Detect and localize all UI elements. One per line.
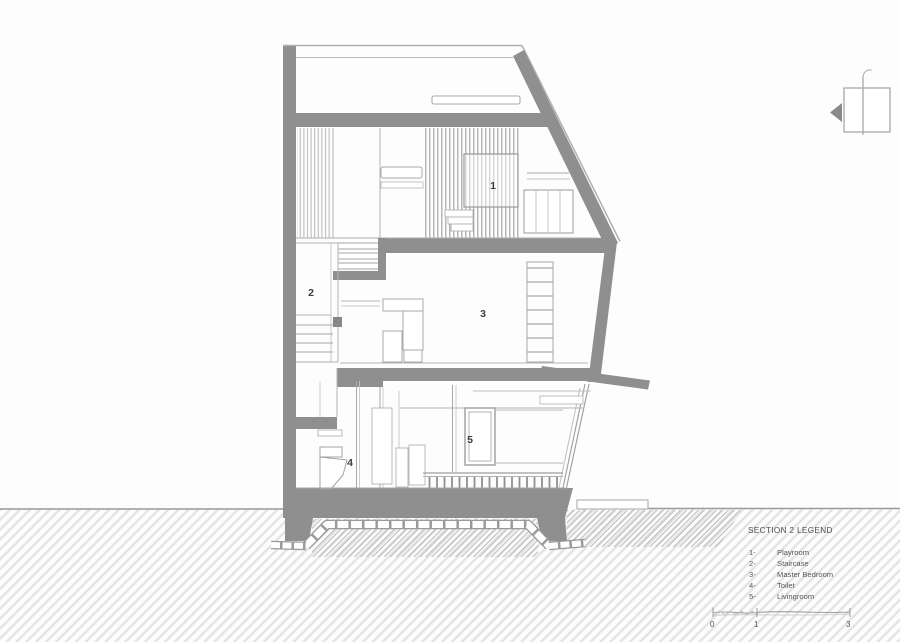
slab-level2 bbox=[380, 238, 610, 253]
bedroom-furniture bbox=[383, 299, 423, 311]
stair-landing-slab bbox=[291, 417, 337, 429]
room-label-staircase: 2 bbox=[308, 287, 314, 299]
floor-ground bbox=[296, 381, 591, 489]
section-drawing-canvas: 1 2 3 4 5 SECTION 2 LEGEND 1- Playroom 2… bbox=[0, 0, 900, 642]
bedroom-furniture bbox=[383, 331, 402, 362]
wardrobe bbox=[524, 190, 573, 233]
stair-tread bbox=[338, 263, 380, 269]
stair-tread bbox=[338, 253, 380, 259]
svg-text:5-: 5- bbox=[749, 592, 756, 601]
shelving-unit bbox=[527, 262, 553, 362]
door-leaf bbox=[372, 408, 392, 484]
slat-screen-left bbox=[297, 128, 330, 238]
section-marker-icon bbox=[830, 70, 890, 135]
svg-text:Toilet: Toilet bbox=[777, 581, 796, 590]
svg-text:4-: 4- bbox=[749, 581, 756, 590]
shelf-unit bbox=[381, 167, 422, 178]
room-label-livingroom: 5 bbox=[467, 434, 473, 446]
floor-playroom bbox=[296, 128, 598, 238]
bedroom-furniture bbox=[404, 350, 422, 362]
room-label-toilet: 4 bbox=[347, 457, 353, 469]
ledge bbox=[540, 396, 583, 404]
room-label-master-bedroom: 3 bbox=[480, 308, 486, 320]
skylight bbox=[432, 96, 520, 104]
svg-text:3-: 3- bbox=[749, 570, 756, 579]
cabinet bbox=[396, 448, 408, 487]
building-section: 1 2 3 4 5 bbox=[271, 46, 650, 547]
scale-tick-3: 3 bbox=[846, 620, 851, 629]
terrace-step bbox=[577, 500, 648, 509]
stair-newel bbox=[333, 317, 342, 327]
right-wall-upper bbox=[588, 242, 617, 382]
dense-hatch-right bbox=[567, 510, 742, 547]
section-arrow-icon bbox=[830, 103, 842, 122]
svg-text:Master Bedroom: Master Bedroom bbox=[777, 570, 833, 579]
stair-tread bbox=[338, 243, 380, 249]
railing bbox=[423, 473, 563, 488]
svg-text:Staircase: Staircase bbox=[777, 559, 809, 568]
svg-text:Livingroom: Livingroom bbox=[777, 592, 814, 601]
svg-text:Playroom: Playroom bbox=[777, 548, 809, 557]
cabinet bbox=[409, 445, 425, 485]
svg-text:1-: 1- bbox=[749, 548, 756, 557]
svg-text:2-: 2- bbox=[749, 559, 756, 568]
stair-landing-edge bbox=[333, 271, 381, 280]
staircase bbox=[296, 238, 386, 417]
bedroom-furniture bbox=[403, 311, 423, 350]
scale-tick-1: 1 bbox=[754, 620, 759, 629]
stair-flight-lower bbox=[296, 318, 333, 358]
toilet-fixture bbox=[320, 447, 347, 489]
room-label-playroom: 1 bbox=[490, 180, 496, 192]
legend-title: SECTION 2 LEGEND bbox=[748, 526, 833, 535]
ceiling-slab bbox=[296, 113, 548, 127]
toilet-shelf bbox=[318, 430, 342, 436]
scale-tick-0: 0 bbox=[710, 620, 715, 629]
